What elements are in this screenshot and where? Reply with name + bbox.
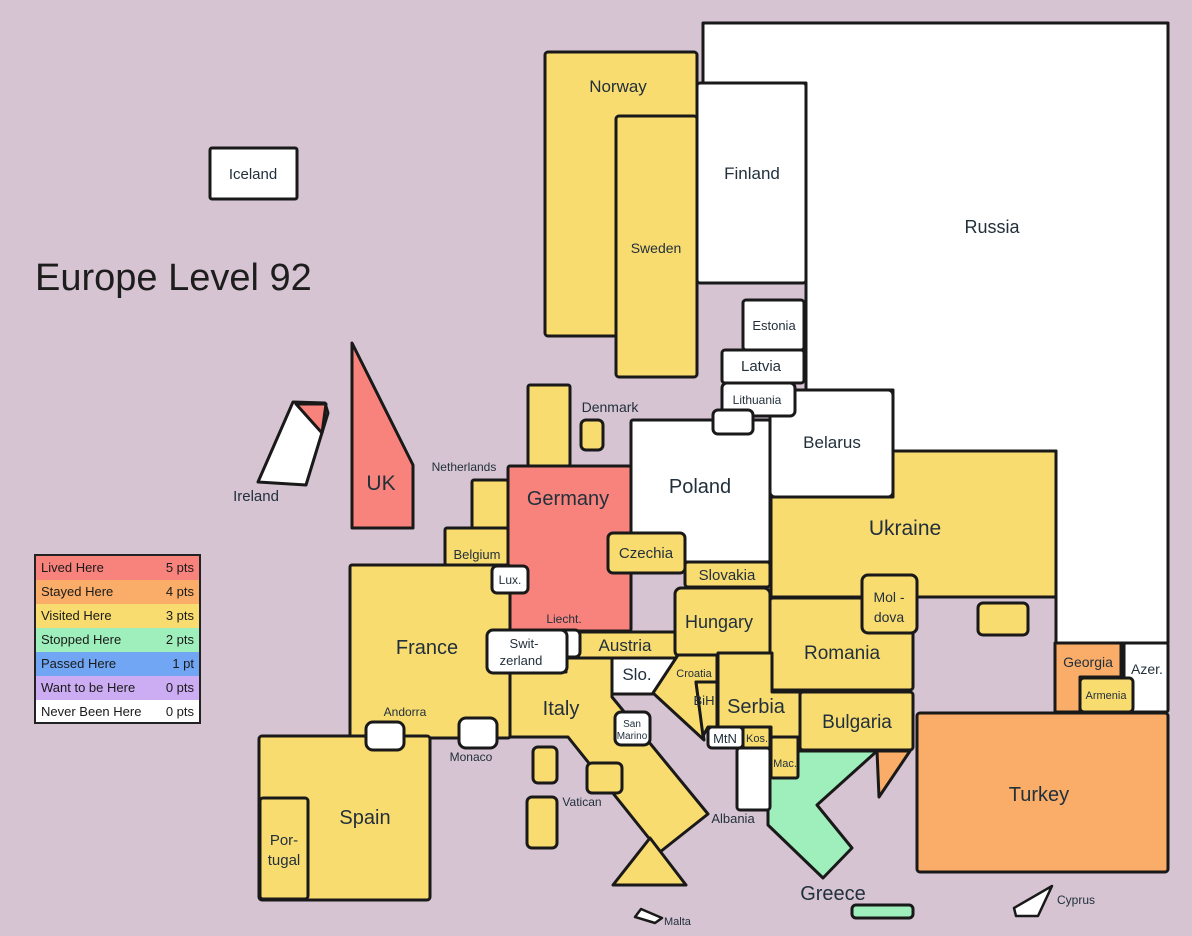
label-hungary: Hungary: [685, 612, 753, 632]
label-macedonia: Mac.: [773, 758, 797, 770]
finland-shape[interactable]: [697, 83, 806, 283]
label-france: France: [396, 637, 458, 659]
vatican-shape[interactable]: [587, 763, 622, 793]
label-portugal-line2: tugal: [268, 852, 301, 869]
legend-label: Lived Here: [41, 560, 104, 575]
label-slovakia: Slovakia: [699, 567, 756, 584]
label-azerbaijan: Azer.: [1131, 661, 1163, 677]
legend-row-stopped[interactable]: Stopped Here 2 pts: [36, 628, 199, 652]
legend-points: 5 pts: [166, 560, 195, 575]
kaliningrad-shape[interactable]: [713, 410, 753, 434]
label-ukraine: Ukraine: [869, 517, 941, 540]
label-san-marino-line2: Marino: [617, 731, 648, 742]
label-belarus: Belarus: [803, 433, 861, 452]
label-bosnia: BiH: [694, 693, 715, 708]
legend-row-stayed[interactable]: Stayed Here 4 pts: [36, 580, 199, 604]
legend-points: 2 pts: [166, 632, 195, 647]
label-sweden: Sweden: [631, 240, 682, 256]
label-cyprus: Cyprus: [1057, 893, 1095, 907]
label-spain: Spain: [339, 807, 390, 829]
albania-shape[interactable]: [737, 748, 770, 810]
label-bulgaria: Bulgaria: [822, 712, 892, 733]
label-ireland: Ireland: [233, 488, 279, 505]
legend-label: Visited Here: [41, 608, 112, 623]
legend-points: 1 pt: [172, 656, 194, 671]
legend-label: Want to be Here: [41, 680, 135, 695]
label-andorra: Andorra: [384, 705, 427, 719]
label-georgia: Georgia: [1063, 654, 1113, 670]
denmark-islands-shape[interactable]: [581, 420, 603, 450]
country-slovakia[interactable]: Slovakia: [685, 562, 770, 587]
country-kosovo[interactable]: Kos.: [743, 727, 770, 748]
label-vatican: Vatican: [562, 795, 601, 809]
label-denmark: Denmark: [582, 399, 640, 415]
label-austria: Austria: [599, 636, 652, 655]
label-czechia: Czechia: [619, 545, 674, 562]
country-bulgaria[interactable]: Bulgaria: [800, 692, 913, 750]
country-armenia[interactable]: Armenia: [1080, 678, 1133, 712]
legend-row-passed[interactable]: Passed Here 1 pt: [36, 652, 199, 676]
country-sweden[interactable]: Sweden: [616, 116, 697, 377]
country-czechia[interactable]: Czechia: [608, 533, 685, 573]
europe-level-map: Europe Level 92 Russia Finland Norway Sw…: [0, 0, 1192, 936]
country-switzerland[interactable]: Swit- zerland: [487, 630, 567, 673]
legend-row-lived[interactable]: Lived Here 5 pts: [36, 556, 199, 580]
label-san-marino-line1: San: [623, 719, 641, 730]
label-kosovo: Kos.: [746, 733, 768, 745]
sardinia-shape[interactable]: [527, 797, 557, 848]
legend: Lived Here 5 pts Stayed Here 4 pts Visit…: [35, 555, 200, 723]
label-uk: UK: [366, 472, 395, 495]
label-norway: Norway: [589, 77, 647, 96]
country-portugal[interactable]: Por- tugal: [260, 798, 308, 899]
legend-points: 0 pts: [166, 704, 195, 719]
country-turkey[interactable]: Turkey: [877, 713, 1168, 872]
label-croatia: Croatia: [676, 668, 712, 680]
label-italy: Italy: [543, 698, 580, 720]
country-iceland[interactable]: Iceland: [210, 148, 297, 199]
legend-label: Stopped Here: [41, 632, 121, 647]
label-romania: Romania: [804, 643, 880, 664]
crimea-shape[interactable]: [978, 603, 1028, 635]
label-portugal-line1: Por-: [270, 832, 298, 849]
label-turkey: Turkey: [1009, 784, 1069, 806]
label-russia: Russia: [964, 217, 1020, 237]
label-liechtenstein: Liecht.: [546, 612, 581, 626]
label-netherlands: Netherlands: [432, 460, 497, 474]
label-monaco: Monaco: [450, 750, 493, 764]
country-finland[interactable]: Finland: [697, 83, 806, 283]
label-montenegro: MtN: [713, 731, 737, 746]
country-estonia[interactable]: Estonia: [743, 300, 804, 350]
label-slovenia: Slo.: [622, 665, 651, 684]
crete-shape[interactable]: [852, 905, 913, 918]
label-moldova-line2: dova: [874, 609, 905, 625]
label-iceland: Iceland: [229, 166, 277, 183]
label-lithuania: Lithuania: [733, 393, 782, 407]
label-greece: Greece: [800, 883, 866, 905]
label-luxembourg: Lux.: [499, 573, 522, 587]
legend-row-visited[interactable]: Visited Here 3 pts: [36, 604, 199, 628]
label-switzerland-line2: zerland: [500, 653, 543, 668]
label-moldova-line1: Mol -: [873, 589, 904, 605]
denmark-mainland-shape[interactable]: [528, 385, 570, 466]
label-estonia: Estonia: [752, 318, 796, 333]
page-title: Europe Level 92: [35, 257, 312, 299]
legend-label: Stayed Here: [41, 584, 113, 599]
monaco-shape[interactable]: [459, 718, 497, 748]
label-albania: Albania: [711, 811, 755, 826]
legend-points: 3 pts: [166, 608, 195, 623]
label-finland: Finland: [724, 164, 780, 183]
label-belgium: Belgium: [454, 547, 501, 562]
legend-row-never[interactable]: Never Been Here 0 pts: [36, 700, 199, 722]
country-latvia[interactable]: Latvia: [722, 350, 804, 383]
label-armenia: Armenia: [1086, 690, 1128, 702]
legend-points: 4 pts: [166, 584, 195, 599]
legend-row-want[interactable]: Want to be Here 0 pts: [36, 676, 199, 700]
legend-label: Never Been Here: [41, 704, 141, 719]
legend-points: 0 pts: [166, 680, 195, 695]
label-serbia: Serbia: [727, 696, 786, 718]
country-luxembourg[interactable]: Lux.: [492, 566, 528, 593]
country-montenegro[interactable]: MtN: [708, 727, 743, 748]
country-belgium[interactable]: Belgium: [445, 528, 508, 565]
country-moldova[interactable]: Mol - dova: [862, 575, 917, 633]
legend-label: Passed Here: [41, 656, 116, 671]
label-germany: Germany: [527, 488, 609, 510]
label-poland: Poland: [669, 476, 731, 498]
label-switzerland-line1: Swit-: [510, 636, 539, 651]
label-latvia: Latvia: [741, 358, 782, 375]
country-san-marino[interactable]: San Marino: [615, 712, 650, 745]
label-malta: Malta: [664, 916, 692, 928]
corsica-shape[interactable]: [533, 747, 557, 783]
andorra-shape[interactable]: [366, 722, 404, 750]
country-macedonia[interactable]: Mac.: [771, 737, 798, 778]
country-hungary[interactable]: Hungary: [675, 588, 770, 657]
